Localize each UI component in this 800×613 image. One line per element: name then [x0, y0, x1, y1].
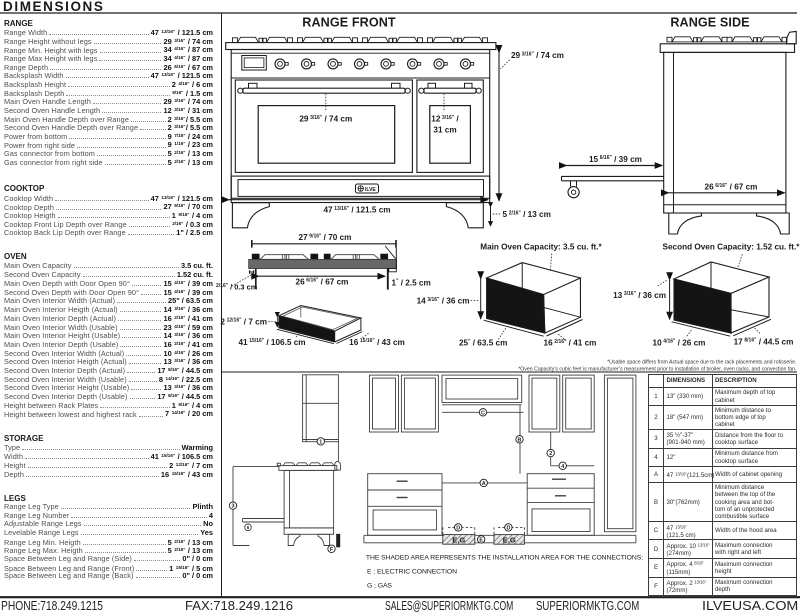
svg-text:THE SHADED AREA REPRESENTS THE: THE SHADED AREA REPRESENTS THE INSTALLAT…: [366, 554, 643, 561]
svg-text:5 2/16" / 13 cm: 5 2/16" / 13 cm: [503, 210, 551, 219]
svg-text:2: 2: [549, 451, 552, 457]
svg-text:29 3/16" / 74 cm: 29 3/16" / 74 cm: [511, 51, 564, 60]
svg-text:26 6/16" / 67 cm: 26 6/16" / 67 cm: [705, 183, 758, 192]
svg-text:G ; GAS: G ; GAS: [367, 582, 392, 589]
svg-text:E.G: E.G: [503, 536, 516, 545]
svg-text:4: 4: [561, 464, 564, 470]
svg-text:1" / 2.5 cm: 1" / 2.5 cm: [392, 278, 431, 287]
svg-text:12 3/16" /: 12 3/16" /: [431, 115, 459, 124]
svg-text:B: B: [518, 437, 522, 443]
svg-text:26 6/16" / 67 cm: 26 6/16" / 67 cm: [296, 277, 349, 286]
svg-text:14 3/16" / 36 cm: 14 3/16" / 36 cm: [417, 297, 470, 306]
svg-text:C: C: [481, 410, 485, 416]
svg-text:2/16" / 0.3 cm: 2/16" / 0.3 cm: [216, 283, 258, 292]
svg-text:16 2/16" / 41 cm: 16 2/16" / 41 cm: [544, 339, 597, 348]
svg-text:RANGE SIDE: RANGE SIDE: [670, 16, 749, 30]
svg-text:16 15/16" / 43 cm: 16 15/16" / 43 cm: [349, 338, 405, 347]
svg-text:27 9/16" / 70 cm: 27 9/16" / 70 cm: [299, 233, 352, 242]
svg-text:E.G: E.G: [452, 536, 465, 545]
svg-text:29 3/16" / 74 cm: 29 3/16" / 74 cm: [299, 115, 352, 124]
svg-text:E ; ELECTRIC CONNECTION: E ; ELECTRIC CONNECTION: [367, 568, 457, 575]
svg-text:ILVE: ILVE: [365, 187, 376, 193]
svg-text:6: 6: [247, 525, 250, 530]
svg-text:RANGE FRONT: RANGE FRONT: [302, 16, 396, 30]
svg-text:31 cm: 31 cm: [433, 126, 456, 135]
svg-text:15 6/16" / 39 cm: 15 6/16" / 39 cm: [589, 155, 642, 164]
svg-text:41 15/16" / 106.5 cm: 41 15/16" / 106.5 cm: [238, 338, 305, 347]
svg-text:E: E: [479, 537, 483, 543]
svg-text:3: 3: [232, 504, 235, 510]
svg-text:1: 1: [319, 439, 322, 445]
svg-text:*Oven Capacity’s cubic feet is: *Oven Capacity’s cubic feet is manufactu…: [518, 366, 796, 372]
svg-text:D: D: [506, 525, 510, 531]
svg-text:13 3/16" / 36 cm: 13 3/16" / 36 cm: [613, 291, 666, 300]
svg-text:D: D: [456, 525, 460, 531]
svg-text:10 4/16" / 26 cm: 10 4/16" / 26 cm: [653, 338, 706, 347]
svg-text:Main Oven Capacity: 3.5 cu. ft: Main Oven Capacity: 3.5 cu. ft.*: [480, 242, 602, 251]
svg-text:2 12/16" / 7 cm: 2 12/16" / 7 cm: [220, 317, 267, 326]
svg-text:*Usable space differs from Act: *Usable space differs from Actual space …: [607, 359, 796, 365]
svg-text:17 8/16" / 44.5 cm: 17 8/16" / 44.5 cm: [734, 337, 794, 346]
svg-text:Second Oven Capacity: 1.52 cu.: Second Oven Capacity: 1.52 cu. ft.*: [663, 242, 800, 251]
svg-text:47 13/16" / 121.5 cm: 47 13/16" / 121.5 cm: [323, 206, 390, 215]
svg-text:25" / 63.5 cm: 25" / 63.5 cm: [459, 339, 507, 348]
svg-text:A: A: [482, 481, 486, 487]
